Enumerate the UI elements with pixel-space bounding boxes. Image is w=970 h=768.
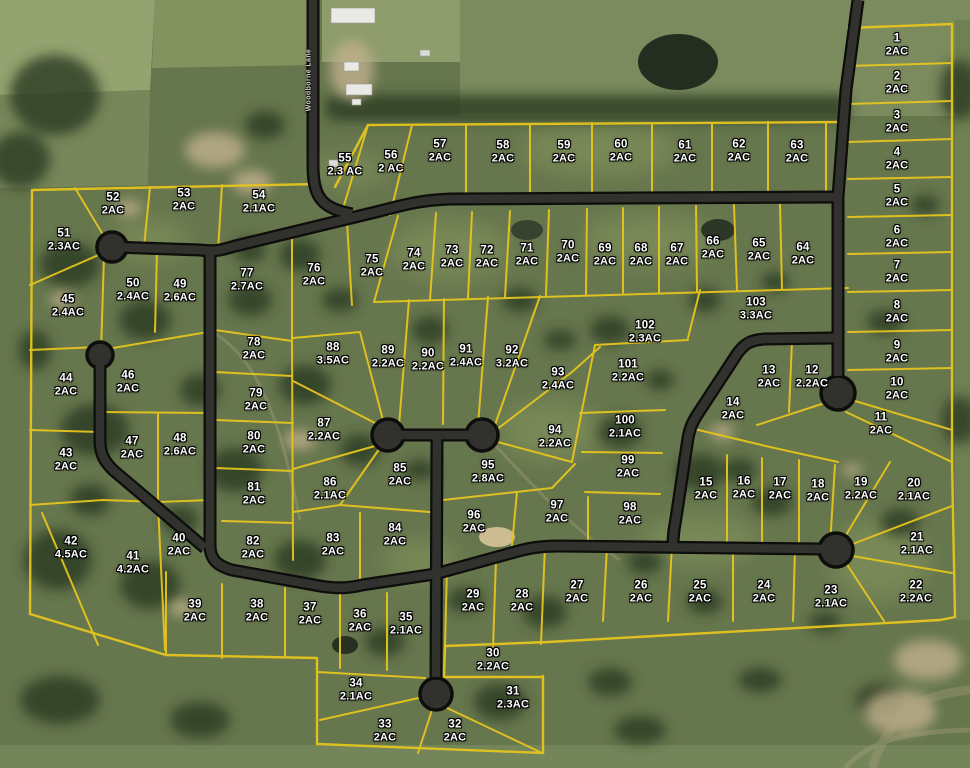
- lot-label: 50 2.4AC: [117, 277, 149, 302]
- lot-acreage: 3.2AC: [496, 357, 528, 369]
- lot-number: 83: [322, 532, 345, 545]
- lot-acreage: 2AC: [886, 352, 909, 364]
- lot-acreage: 2.2AC: [845, 489, 877, 501]
- lot-label: 31 2.3AC: [497, 685, 529, 710]
- lot-label: 6 2AC: [886, 224, 909, 249]
- lot-number: 39: [184, 598, 207, 611]
- lot-acreage: 2.4AC: [117, 290, 149, 302]
- lot-number: 64: [792, 241, 815, 254]
- lot-label: 20 2.1AC: [898, 477, 930, 502]
- lot-label: 97 2AC: [546, 499, 569, 524]
- lot-acreage: 2.1AC: [390, 624, 422, 636]
- lot-number: 69: [594, 242, 617, 255]
- lot-number: 42: [55, 535, 87, 548]
- lot-label: 81 2AC: [243, 481, 266, 506]
- lot-number: 49: [164, 278, 196, 291]
- lot-acreage: 2AC: [173, 200, 196, 212]
- lot-label: 47 2AC: [121, 435, 144, 460]
- lot-acreage: 2.2AC: [796, 377, 828, 389]
- lot-label: 8 2AC: [886, 299, 909, 324]
- lot-number: 74: [403, 247, 426, 260]
- lot-label: 68 2AC: [630, 242, 653, 267]
- lot-acreage: 2.1AC: [243, 202, 275, 214]
- lot-acreage: 2AC: [610, 151, 633, 163]
- lot-acreage: 2.3AC: [48, 240, 80, 252]
- lot-label: 83 2AC: [322, 532, 345, 557]
- lot-number: 98: [619, 501, 642, 514]
- lot-number: 57: [429, 138, 452, 151]
- lot-number: 68: [630, 242, 653, 255]
- lot-acreage: 2.3 AC: [327, 165, 362, 177]
- lot-number: 41: [117, 550, 149, 563]
- lot-number: 89: [372, 344, 404, 357]
- lot-label: 79 2AC: [245, 387, 268, 412]
- lot-acreage: 2.7AC: [231, 280, 263, 292]
- lot-label: 103 3.3AC: [740, 296, 772, 321]
- lot-label: 13 2AC: [758, 364, 781, 389]
- lot-acreage: 2.1AC: [815, 597, 847, 609]
- lot-number: 88: [317, 341, 349, 354]
- lot-acreage: 2AC: [546, 512, 569, 524]
- lot-number: 9: [886, 339, 909, 352]
- lot-acreage: 2AC: [168, 545, 191, 557]
- lot-number: 24: [753, 579, 776, 592]
- lot-acreage: 2AC: [722, 409, 745, 421]
- lot-acreage: 2AC: [557, 252, 580, 264]
- lot-number: 3: [886, 109, 909, 122]
- lot-label: 38 2AC: [246, 598, 269, 623]
- lot-acreage: 2AC: [792, 254, 815, 266]
- lot-number: 51: [48, 227, 80, 240]
- lot-label: 77 2.7AC: [231, 267, 263, 292]
- lot-label: 86 2.1AC: [314, 476, 346, 501]
- lot-acreage: 2.1AC: [898, 490, 930, 502]
- lot-acreage: 2AC: [886, 122, 909, 134]
- lot-acreage: 2AC: [384, 535, 407, 547]
- lot-number: 4: [886, 146, 909, 159]
- lot-acreage: 2AC: [511, 601, 534, 613]
- lot-acreage: 2AC: [303, 275, 326, 287]
- lot-number: 65: [748, 237, 771, 250]
- lot-label: 15 2AC: [695, 476, 718, 501]
- lot-label: 40 2AC: [168, 532, 191, 557]
- lot-label: 96 2AC: [463, 509, 486, 534]
- lot-acreage: 2AC: [55, 460, 78, 472]
- lot-label: 18 2AC: [807, 478, 830, 503]
- lot-label: 36 2AC: [349, 608, 372, 633]
- lot-label: 67 2AC: [666, 242, 689, 267]
- lot-label: 49 2.6AC: [164, 278, 196, 303]
- lot-number: 80: [243, 430, 266, 443]
- lot-acreage: 2AC: [886, 237, 909, 249]
- lot-label: 51 2.3AC: [48, 227, 80, 252]
- lot-label: 65 2AC: [748, 237, 771, 262]
- lot-acreage: 2AC: [617, 467, 640, 479]
- lot-label: 101 2.2AC: [612, 358, 644, 383]
- lot-acreage: 2AC: [886, 159, 909, 171]
- lot-number: 81: [243, 481, 266, 494]
- lot-label: 32 2AC: [444, 718, 467, 743]
- lot-number: 44: [55, 372, 78, 385]
- lot-acreage: 2AC: [492, 152, 515, 164]
- lot-label: 12 2.2AC: [796, 364, 828, 389]
- lot-acreage: 2AC: [769, 489, 792, 501]
- lot-number: 95: [472, 459, 504, 472]
- lot-number: 62: [728, 138, 751, 151]
- lot-number: 38: [246, 598, 269, 611]
- lot-label: 30 2.2AC: [477, 647, 509, 672]
- lot-label: 94 2.2AC: [539, 424, 571, 449]
- lot-acreage: 3.5AC: [317, 354, 349, 366]
- lot-acreage: 2AC: [245, 400, 268, 412]
- lot-acreage: 2AC: [674, 152, 697, 164]
- lot-acreage: 2AC: [403, 260, 426, 272]
- lot-label: 33 2AC: [374, 718, 397, 743]
- lot-number: 21: [901, 531, 933, 544]
- lot-number: 29: [462, 588, 485, 601]
- lot-acreage: 2AC: [553, 152, 576, 164]
- lot-number: 70: [557, 239, 580, 252]
- lot-acreage: 2AC: [349, 621, 372, 633]
- lot-number: 43: [55, 447, 78, 460]
- lot-number: 46: [117, 369, 140, 382]
- lot-label: 89 2.2AC: [372, 344, 404, 369]
- lot-label: 39 2AC: [184, 598, 207, 623]
- lot-number: 17: [769, 476, 792, 489]
- lot-number: 2: [886, 70, 909, 83]
- lot-label: 82 2AC: [242, 535, 265, 560]
- lot-label: 55 2.3 AC: [327, 152, 362, 177]
- lot-acreage: 2.3AC: [629, 332, 661, 344]
- lot-number: 54: [243, 189, 275, 202]
- lot-label: 52 2AC: [102, 191, 125, 216]
- lot-acreage: 2AC: [630, 255, 653, 267]
- lot-number: 5: [886, 183, 909, 196]
- lot-number: 19: [845, 476, 877, 489]
- lot-acreage: 4.2AC: [117, 563, 149, 575]
- lot-number: 52: [102, 191, 125, 204]
- lot-label: 78 2AC: [243, 336, 266, 361]
- lot-number: 32: [444, 718, 467, 731]
- lot-label: 11 2AC: [870, 411, 893, 436]
- lot-number: 33: [374, 718, 397, 731]
- lot-acreage: 2AC: [695, 489, 718, 501]
- lot-number: 73: [441, 244, 464, 257]
- lot-acreage: 2AC: [666, 255, 689, 267]
- lot-number: 55: [327, 152, 362, 165]
- lot-number: 86: [314, 476, 346, 489]
- lot-label: 5 2AC: [886, 183, 909, 208]
- lot-number: 6: [886, 224, 909, 237]
- lot-number: 87: [308, 417, 340, 430]
- lot-acreage: 2AC: [807, 491, 830, 503]
- lot-label: 57 2AC: [429, 138, 452, 163]
- lot-label: 37 2AC: [299, 601, 322, 626]
- lot-label: 28 2AC: [511, 588, 534, 613]
- lot-acreage: 2AC: [786, 152, 809, 164]
- lot-acreage: 2AC: [758, 377, 781, 389]
- lot-acreage: 2.4AC: [450, 356, 482, 368]
- lot-acreage: 2.2AC: [900, 592, 932, 604]
- lot-label: 44 2AC: [55, 372, 78, 397]
- lot-number: 11: [870, 411, 893, 424]
- lot-acreage: 2AC: [299, 614, 322, 626]
- lot-label: 46 2AC: [117, 369, 140, 394]
- lot-number: 91: [450, 343, 482, 356]
- lot-label: 19 2.2AC: [845, 476, 877, 501]
- lot-acreage: 2AC: [361, 266, 384, 278]
- lot-acreage: 2AC: [441, 257, 464, 269]
- lot-label: 24 2AC: [753, 579, 776, 604]
- lot-label: 56 2 AC: [378, 149, 403, 174]
- lot-label: 60 2AC: [610, 138, 633, 163]
- lot-label: 98 2AC: [619, 501, 642, 526]
- lot-acreage: 2 AC: [378, 162, 403, 174]
- lot-number: 75: [361, 253, 384, 266]
- lot-label: 99 2AC: [617, 454, 640, 479]
- lot-label: 62 2AC: [728, 138, 751, 163]
- lot-label: 14 2AC: [722, 396, 745, 421]
- lot-label: 22 2.2AC: [900, 579, 932, 604]
- lot-label: 7 2AC: [886, 259, 909, 284]
- lot-number: 92: [496, 344, 528, 357]
- lot-acreage: 2.2AC: [412, 360, 444, 372]
- lot-number: 20: [898, 477, 930, 490]
- lot-label: 93 2.4AC: [542, 366, 574, 391]
- lot-number: 96: [463, 509, 486, 522]
- lot-label: 9 2AC: [886, 339, 909, 364]
- lot-acreage: 2AC: [242, 548, 265, 560]
- lot-label: 73 2AC: [441, 244, 464, 269]
- lot-label: 90 2.2AC: [412, 347, 444, 372]
- lot-number: 79: [245, 387, 268, 400]
- lot-label: 61 2AC: [674, 139, 697, 164]
- lot-acreage: 2AC: [374, 731, 397, 743]
- lot-number: 1: [886, 32, 909, 45]
- lot-number: 36: [349, 608, 372, 621]
- lot-acreage: 2AC: [184, 611, 207, 623]
- lot-acreage: 2.2AC: [539, 437, 571, 449]
- lot-number: 28: [511, 588, 534, 601]
- lot-label: 21 2.1AC: [901, 531, 933, 556]
- lot-number: 22: [900, 579, 932, 592]
- lot-acreage: 2AC: [429, 151, 452, 163]
- lot-number: 56: [378, 149, 403, 162]
- lot-acreage: 2AC: [619, 514, 642, 526]
- lot-number: 76: [303, 262, 326, 275]
- lot-acreage: 2.1AC: [901, 544, 933, 556]
- lot-label: 3 2AC: [886, 109, 909, 134]
- lot-acreage: 2AC: [689, 592, 712, 604]
- lot-labels-layer: 1 2AC 2 2AC 3 2AC 4 2AC 5 2AC 6 2AC 7 2A…: [0, 0, 970, 768]
- lot-label: 80 2AC: [243, 430, 266, 455]
- lot-acreage: 2.6AC: [164, 445, 196, 457]
- lot-number: 67: [666, 242, 689, 255]
- lot-acreage: 2AC: [886, 272, 909, 284]
- lot-number: 78: [243, 336, 266, 349]
- lot-label: 87 2.2AC: [308, 417, 340, 442]
- lot-number: 101: [612, 358, 644, 371]
- lot-acreage: 2.2AC: [612, 371, 644, 383]
- lot-acreage: 2AC: [476, 257, 499, 269]
- lot-acreage: 2AC: [886, 196, 909, 208]
- lot-acreage: 2AC: [243, 443, 266, 455]
- lot-label: 102 2.3AC: [629, 319, 661, 344]
- lot-acreage: 2AC: [566, 592, 589, 604]
- lot-number: 59: [553, 139, 576, 152]
- lot-label: 66 2AC: [702, 235, 725, 260]
- lot-label: 69 2AC: [594, 242, 617, 267]
- lot-label: 17 2AC: [769, 476, 792, 501]
- lot-acreage: 2.1AC: [340, 690, 372, 702]
- lot-number: 60: [610, 138, 633, 151]
- lot-label: 48 2.6AC: [164, 432, 196, 457]
- lot-number: 30: [477, 647, 509, 660]
- lot-acreage: 2.2AC: [372, 357, 404, 369]
- lot-label: 2 2AC: [886, 70, 909, 95]
- lot-acreage: 2AC: [733, 488, 756, 500]
- lot-acreage: 2AC: [748, 250, 771, 262]
- lot-acreage: 2.3AC: [497, 698, 529, 710]
- lot-number: 85: [389, 462, 412, 475]
- lot-label: 76 2AC: [303, 262, 326, 287]
- lot-acreage: 2AC: [243, 494, 266, 506]
- lot-acreage: 2AC: [886, 389, 909, 401]
- lot-label: 42 4.5AC: [55, 535, 87, 560]
- lot-label: 75 2AC: [361, 253, 384, 278]
- lot-label: 72 2AC: [476, 244, 499, 269]
- lot-number: 63: [786, 139, 809, 152]
- lot-number: 99: [617, 454, 640, 467]
- lot-label: 1 2AC: [886, 32, 909, 57]
- lot-number: 23: [815, 584, 847, 597]
- lot-number: 31: [497, 685, 529, 698]
- lot-label: 63 2AC: [786, 139, 809, 164]
- lot-label: 34 2.1AC: [340, 677, 372, 702]
- lot-number: 7: [886, 259, 909, 272]
- lot-label: 54 2.1AC: [243, 189, 275, 214]
- lot-number: 61: [674, 139, 697, 152]
- lot-number: 16: [733, 475, 756, 488]
- lot-number: 10: [886, 376, 909, 389]
- lot-label: 84 2AC: [384, 522, 407, 547]
- lot-number: 40: [168, 532, 191, 545]
- lot-number: 53: [173, 187, 196, 200]
- lot-number: 82: [242, 535, 265, 548]
- lot-number: 72: [476, 244, 499, 257]
- lot-number: 34: [340, 677, 372, 690]
- lot-acreage: 2AC: [594, 255, 617, 267]
- lot-acreage: 2.6AC: [164, 291, 196, 303]
- lot-label: 43 2AC: [55, 447, 78, 472]
- lot-acreage: 2AC: [444, 731, 467, 743]
- lot-acreage: 2AC: [389, 475, 412, 487]
- lot-number: 94: [539, 424, 571, 437]
- lot-acreage: 2AC: [463, 522, 486, 534]
- lot-number: 93: [542, 366, 574, 379]
- lot-number: 37: [299, 601, 322, 614]
- lot-label: 29 2AC: [462, 588, 485, 613]
- lot-number: 66: [702, 235, 725, 248]
- lot-number: 48: [164, 432, 196, 445]
- lot-acreage: 2AC: [886, 83, 909, 95]
- lot-number: 15: [695, 476, 718, 489]
- lot-number: 84: [384, 522, 407, 535]
- lot-acreage: 2AC: [870, 424, 893, 436]
- lot-label: 41 4.2AC: [117, 550, 149, 575]
- lot-number: 77: [231, 267, 263, 280]
- lot-acreage: 2AC: [886, 312, 909, 324]
- lot-label: 10 2AC: [886, 376, 909, 401]
- lot-number: 58: [492, 139, 515, 152]
- lot-acreage: 2AC: [243, 349, 266, 361]
- lot-acreage: 2AC: [322, 545, 345, 557]
- lot-number: 35: [390, 611, 422, 624]
- lot-acreage: 4.5AC: [55, 548, 87, 560]
- lot-acreage: 2AC: [102, 204, 125, 216]
- lot-number: 25: [689, 579, 712, 592]
- lot-label: 92 3.2AC: [496, 344, 528, 369]
- lot-number: 14: [722, 396, 745, 409]
- lot-acreage: 2.8AC: [472, 472, 504, 484]
- lot-acreage: 2.4AC: [542, 379, 574, 391]
- lot-acreage: 2AC: [753, 592, 776, 604]
- lot-number: 71: [516, 242, 539, 255]
- lot-number: 26: [630, 579, 653, 592]
- lot-label: 53 2AC: [173, 187, 196, 212]
- lot-label: 91 2.4AC: [450, 343, 482, 368]
- lot-acreage: 2AC: [55, 385, 78, 397]
- lot-label: 59 2AC: [553, 139, 576, 164]
- lot-acreage: 2AC: [630, 592, 653, 604]
- lot-label: 45 2.4AC: [52, 293, 84, 318]
- lot-acreage: 2AC: [462, 601, 485, 613]
- lot-acreage: 2AC: [886, 45, 909, 57]
- lot-label: 26 2AC: [630, 579, 653, 604]
- lot-number: 8: [886, 299, 909, 312]
- lot-label: 27 2AC: [566, 579, 589, 604]
- lot-label: 16 2AC: [733, 475, 756, 500]
- lot-acreage: 2.2AC: [477, 660, 509, 672]
- lot-number: 45: [52, 293, 84, 306]
- lot-acreage: 2.2AC: [308, 430, 340, 442]
- lot-label: 23 2.1AC: [815, 584, 847, 609]
- lot-label: 71 2AC: [516, 242, 539, 267]
- lot-acreage: 2.1AC: [609, 427, 641, 439]
- lot-number: 13: [758, 364, 781, 377]
- lot-label: 74 2AC: [403, 247, 426, 272]
- lot-label: 64 2AC: [792, 241, 815, 266]
- lot-number: 50: [117, 277, 149, 290]
- lot-number: 12: [796, 364, 828, 377]
- lot-acreage: 2AC: [117, 382, 140, 394]
- lot-acreage: 2.1AC: [314, 489, 346, 501]
- lot-number: 102: [629, 319, 661, 332]
- lot-number: 47: [121, 435, 144, 448]
- lot-number: 100: [609, 414, 641, 427]
- lot-label: 88 3.5AC: [317, 341, 349, 366]
- lot-number: 27: [566, 579, 589, 592]
- lot-acreage: 2.4AC: [52, 306, 84, 318]
- lot-acreage: 2AC: [728, 151, 751, 163]
- lot-label: 85 2AC: [389, 462, 412, 487]
- lot-acreage: 2AC: [516, 255, 539, 267]
- lot-number: 90: [412, 347, 444, 360]
- lot-label: 100 2.1AC: [609, 414, 641, 439]
- lot-label: 25 2AC: [689, 579, 712, 604]
- lot-number: 97: [546, 499, 569, 512]
- plat-map: Woodborne Lane 1 2AC 2 2AC 3 2AC 4 2AC 5…: [0, 0, 970, 768]
